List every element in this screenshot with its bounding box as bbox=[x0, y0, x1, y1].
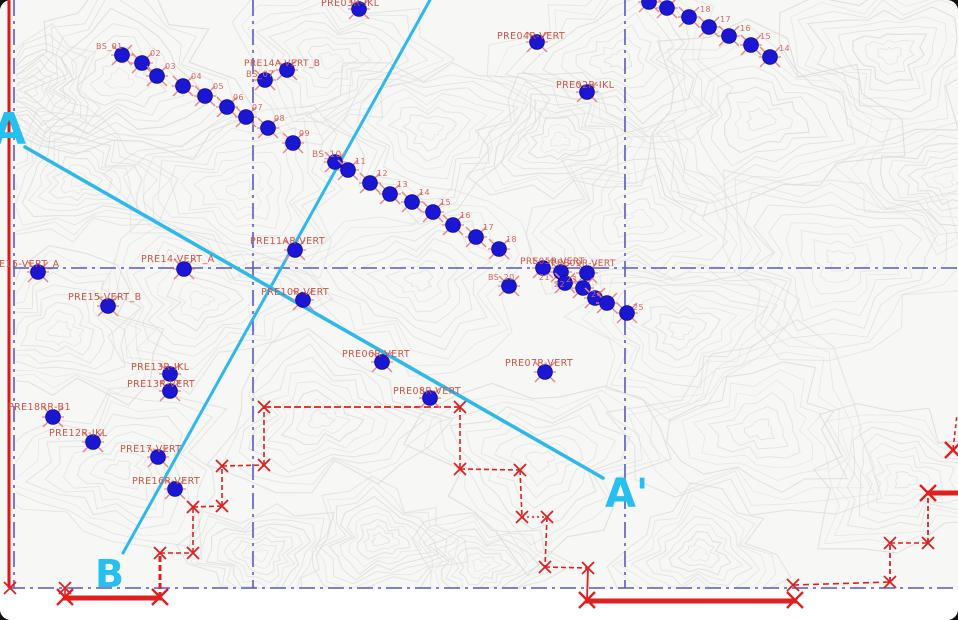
point-dot[interactable] bbox=[341, 163, 356, 178]
point-dot[interactable] bbox=[383, 187, 398, 202]
point-label: 06 bbox=[233, 93, 244, 102]
point-label: 22 bbox=[554, 280, 565, 289]
survey-point[interactable] bbox=[740, 35, 762, 55]
section-label: B bbox=[95, 552, 124, 596]
survey-point[interactable] bbox=[698, 17, 720, 37]
point-label: PRE17-VERT bbox=[120, 444, 182, 455]
point-dot[interactable] bbox=[682, 10, 697, 25]
boundary-segment bbox=[587, 568, 588, 600]
point-label: 07 bbox=[252, 103, 263, 112]
point-label: PRE03R-IKL bbox=[321, 0, 380, 9]
point-label: BS_07 bbox=[246, 70, 274, 80]
point-label: 24 bbox=[591, 290, 602, 299]
point-label: 12 bbox=[377, 169, 388, 178]
point-dot[interactable] bbox=[660, 1, 675, 16]
point-label: 15 bbox=[440, 198, 451, 207]
point-label: 23 bbox=[566, 275, 577, 284]
point-label: PRE04R-VERT bbox=[497, 31, 565, 42]
point-label: 16 bbox=[460, 211, 471, 220]
point-dot[interactable] bbox=[744, 38, 759, 53]
point-dot[interactable] bbox=[176, 79, 191, 94]
point-label: PRE13R-VERT bbox=[127, 379, 195, 390]
point-label: PRE06R-VERT bbox=[342, 349, 410, 360]
point-label: BS_10 bbox=[312, 150, 342, 160]
point-label: 21 bbox=[539, 273, 550, 282]
point-dot[interactable] bbox=[446, 218, 461, 233]
point-label: 25 bbox=[633, 303, 644, 312]
point-label: BS_01 bbox=[96, 42, 123, 51]
point-dot[interactable] bbox=[576, 281, 591, 296]
point-label: 04 bbox=[191, 72, 202, 81]
point-label: PRE13R-IKL bbox=[131, 362, 190, 373]
point-dot[interactable] bbox=[492, 242, 507, 257]
section-label: A' bbox=[605, 471, 648, 517]
point-label: PRE09R-VERT bbox=[551, 259, 616, 269]
point-label: 13 bbox=[397, 180, 408, 189]
point-label: PRE12R-IKL bbox=[49, 428, 108, 439]
point-dot[interactable] bbox=[198, 89, 213, 104]
point-label: 18 bbox=[700, 5, 711, 14]
point-dot[interactable] bbox=[150, 69, 165, 84]
point-label: 14 bbox=[779, 44, 790, 53]
map-viewport: AA'B BS_010203040506070809BS_10111213141… bbox=[0, 0, 958, 620]
point-label: PRE02R-IKL bbox=[556, 80, 615, 91]
point-label: 02 bbox=[150, 49, 161, 58]
section-label: A bbox=[0, 104, 26, 155]
point-label: 17 bbox=[720, 15, 731, 24]
point-label: 14 bbox=[419, 188, 430, 197]
point-label: 11 bbox=[355, 157, 366, 166]
point-label: PRE07R-VERT bbox=[505, 358, 573, 369]
survey-point[interactable] bbox=[759, 47, 781, 67]
point-dot[interactable] bbox=[426, 205, 441, 220]
survey-point[interactable] bbox=[718, 26, 740, 46]
survey-point[interactable] bbox=[678, 7, 700, 27]
bottom-margin bbox=[0, 589, 958, 620]
point-label: PRE14A-VERT_B bbox=[244, 59, 320, 69]
point-label: PRE14-VERT_A bbox=[141, 254, 215, 265]
point-label: BS_20 bbox=[488, 273, 515, 282]
point-label: PRE11AR-VERT bbox=[250, 236, 325, 247]
point-label: 18 bbox=[506, 235, 517, 244]
point-label: 16 bbox=[740, 24, 751, 33]
point-label: 08 bbox=[274, 114, 285, 123]
topographic-map: AA'B BS_010203040506070809BS_10111213141… bbox=[0, 0, 958, 620]
point-label: 05 bbox=[213, 82, 224, 91]
point-label: PRE15-VERT_A bbox=[0, 259, 60, 270]
point-dot[interactable] bbox=[135, 56, 150, 71]
point-label: PRE15-VERT_B bbox=[68, 292, 142, 303]
point-dot[interactable] bbox=[763, 50, 778, 65]
point-label: 15 bbox=[760, 32, 771, 41]
point-label: PRE16R-VERT bbox=[132, 476, 200, 487]
point-dot[interactable] bbox=[469, 230, 484, 245]
point-label: 17 bbox=[483, 223, 494, 232]
point-dot[interactable] bbox=[722, 29, 737, 44]
point-dot[interactable] bbox=[363, 176, 378, 191]
point-label: 03 bbox=[165, 62, 176, 71]
point-label: PRE18RR-B1 bbox=[8, 402, 71, 413]
map-background bbox=[0, 0, 958, 620]
point-dot[interactable] bbox=[702, 20, 717, 35]
point-label: 09 bbox=[299, 129, 310, 138]
point-label: PRE10R-VERT bbox=[261, 287, 329, 298]
point-dot[interactable] bbox=[405, 195, 420, 210]
point-label: PRE08R-VERT bbox=[393, 386, 461, 397]
